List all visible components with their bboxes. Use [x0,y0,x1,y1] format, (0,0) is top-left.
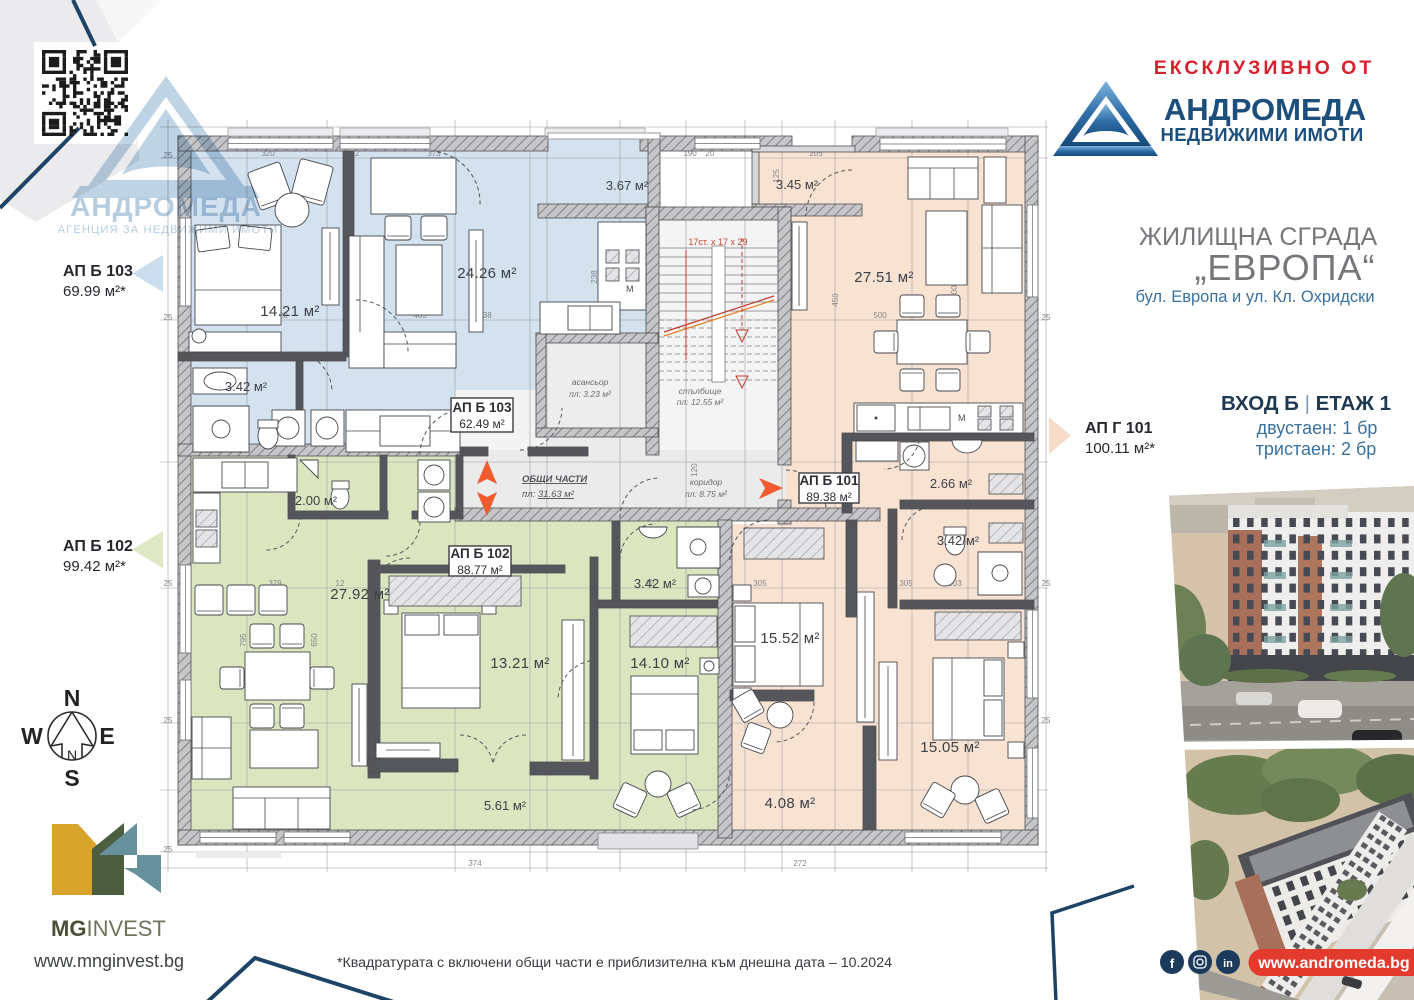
svg-text:М: М [626,284,634,294]
svg-text:пл: 12.55 м²: пл: 12.55 м² [677,397,725,407]
svg-text:14.21 м²: 14.21 м² [260,303,319,320]
svg-text:15.05 м²: 15.05 м² [920,739,979,756]
svg-text:3.42 м²: 3.42 м² [225,379,268,394]
svg-text:АП Г 101: АП Г 101 [1085,420,1153,437]
svg-text:„ЕВРОПА“: „ЕВРОПА“ [1194,247,1375,288]
svg-text:25: 25 [1042,716,1051,725]
svg-text:ОБЩИ ЧАСТИ: ОБЩИ ЧАСТИ [522,474,587,485]
svg-text:стълбище: стълбище [679,386,722,396]
svg-text:тристаен: 2 бр: тристаен: 2 бр [1256,439,1377,459]
svg-text:E: E [99,723,114,749]
svg-text:MGINVEST: MGINVEST [51,916,166,941]
svg-text:650: 650 [310,633,319,647]
svg-text:бул. Европа и ул. Кл. Охридски: бул. Европа и ул. Кл. Охридски [1135,288,1374,306]
svg-text:ВХОД Б | ЕТАЖ 1: ВХОД Б | ЕТАЖ 1 [1221,392,1391,415]
svg-text:89.38 м²: 89.38 м² [806,490,852,504]
svg-text:13.21 м²: 13.21 м² [490,655,549,672]
svg-text:пл: 31.63 м²: пл: 31.63 м² [522,489,575,500]
svg-text:www.mnginvest.bg: www.mnginvest.bg [33,951,184,971]
svg-text:25: 25 [164,716,173,725]
svg-text:3.45 м²: 3.45 м² [776,177,819,192]
svg-text:25: 25 [164,313,173,322]
svg-text:двустаен: 1 бр: двустаен: 1 бр [1257,418,1378,438]
svg-text:АП Б 102: АП Б 102 [450,546,509,561]
svg-text:4.08 м²: 4.08 м² [765,795,816,812]
svg-text:25: 25 [164,845,173,854]
svg-text:N: N [67,747,77,763]
svg-text:15.52 м²: 15.52 м² [760,630,819,647]
svg-text:пл: 3.23 м²: пл: 3.23 м² [569,389,612,399]
svg-text:17ст. х 17 х 29: 17ст. х 17 х 29 [688,237,747,247]
svg-text:АП Б 103: АП Б 103 [452,400,511,415]
svg-text:АП Б 102: АП Б 102 [63,538,133,555]
svg-text:272: 272 [793,859,807,868]
svg-text:305: 305 [753,579,767,588]
svg-text:795: 795 [239,633,248,647]
svg-text:374: 374 [468,859,482,868]
svg-text:пл: 8.75 м²: пл: 8.75 м² [685,489,728,499]
svg-text:in: in [1223,958,1233,970]
svg-text:2.00 м²: 2.00 м² [295,493,338,508]
svg-text:*Квадратурата с включени общи: *Квадратурата с включени общи части е пр… [337,955,892,971]
svg-text:АП Б 103: АП Б 103 [63,263,133,280]
svg-text:АНДРОМЕДА: АНДРОМЕДА [70,191,262,222]
svg-text:450: 450 [831,293,840,307]
svg-text:69.99 м²*: 69.99 м²* [63,283,126,300]
svg-text:3.67 м²: 3.67 м² [606,178,649,193]
svg-text:25: 25 [164,579,173,588]
svg-text:www.andromeda.bg: www.andromeda.bg [1257,955,1409,972]
svg-text:62.49 м²: 62.49 м² [459,417,505,431]
svg-text:100.11 м²*: 100.11 м²* [1085,440,1155,457]
svg-text:24.26 м²: 24.26 м² [457,265,516,282]
svg-text:14.10 м²: 14.10 м² [630,655,689,672]
svg-text:АП Б 101: АП Б 101 [799,473,858,488]
svg-text:АНДРОМЕДА: АНДРОМЕДА [1164,92,1366,127]
svg-text:ЕКСКЛУЗИВНО ОТ: ЕКСКЛУЗИВНО ОТ [1154,57,1375,79]
svg-text:N: N [64,685,81,711]
svg-text:АГЕНЦИЯ ЗА НЕДВИЖИМИ ИМОТИ: АГЕНЦИЯ ЗА НЕДВИЖИМИ ИМОТИ [58,224,279,236]
svg-text:27.51 м²: 27.51 м² [854,269,913,286]
svg-text:120: 120 [690,463,699,477]
svg-text:f: f [1170,956,1175,971]
svg-text:27.92 м²: 27.92 м² [330,586,389,603]
svg-text:25: 25 [1042,579,1051,588]
svg-text:коридор: коридор [690,477,723,487]
svg-text:2.66 м²: 2.66 м² [930,476,973,491]
svg-text:99.42 м²*: 99.42 м²* [63,558,126,575]
svg-text:3.42/м²: 3.42/м² [937,533,980,548]
svg-text:W: W [21,723,43,749]
svg-text:25: 25 [1042,313,1051,322]
svg-text:S: S [64,765,79,791]
svg-text:М: М [958,413,966,423]
svg-text:500: 500 [873,311,887,320]
svg-text:305: 305 [899,579,913,588]
svg-text:3.42 м²: 3.42 м² [634,576,677,591]
svg-text:88.77 м²: 88.77 м² [457,563,503,577]
svg-text:НЕДВИЖИМИ ИМОТИ: НЕДВИЖИМИ ИМОТИ [1160,124,1363,145]
svg-text:5.61 м²: 5.61 м² [484,798,527,813]
svg-text:асансьор: асансьор [572,377,609,387]
